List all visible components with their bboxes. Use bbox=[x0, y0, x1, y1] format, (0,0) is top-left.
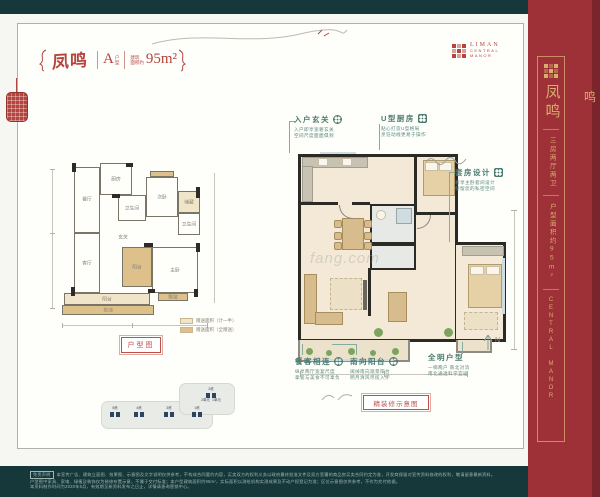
area-group: 建筑 面积约 95m² bbox=[130, 51, 177, 68]
building-icon bbox=[192, 412, 202, 417]
building-icon bbox=[134, 412, 144, 417]
area-caption-bottom: 面积约 bbox=[130, 60, 144, 65]
compass-label: N bbox=[495, 337, 500, 344]
dining-icon bbox=[334, 357, 343, 366]
small-floor-plan: 厨房 餐厅 卫生间 次卧 储藏 卫生间 玄关 客厅 阳台 主卧 飘窗 阳台 花池 bbox=[62, 163, 216, 333]
seal-icon bbox=[544, 64, 558, 78]
small-plan-caption: 户型图 bbox=[121, 337, 161, 353]
site-key-plan: 5栋 4栋 3栋 1栋 2栋 2单元 1单元 bbox=[102, 384, 236, 432]
gift-area-legend: 赠送面积（计一半） 赠送面积（全赠送） bbox=[180, 318, 237, 336]
pencil-scribble bbox=[320, 388, 356, 404]
flourish-right-icon bbox=[177, 48, 189, 72]
legend-label: 赠送面积（全赠送） bbox=[196, 327, 237, 333]
sidebar-edge-character: 鸣 bbox=[584, 88, 596, 105]
annotation-balcony: 南向阳台 阔绰南向观景阳台 明月清风尽揽入怀 bbox=[350, 356, 398, 381]
compass-icon: N bbox=[478, 330, 506, 354]
unit-label: 2单元 bbox=[201, 398, 210, 403]
disclaimer-line3: 本资料制作时间为2020年6月，有效期至新资料发布之日止，详情请垂询营销中心。 bbox=[30, 484, 498, 490]
room-label: 客厅 bbox=[82, 260, 92, 267]
brand-logo: LIMAN CENTRAL MANOR bbox=[452, 43, 500, 58]
building-label: 2栋 bbox=[208, 387, 213, 391]
seal-ornament-icon bbox=[6, 78, 26, 122]
unit-letter: A bbox=[103, 51, 114, 68]
building-label: 1栋 bbox=[194, 406, 199, 410]
red-sidebar-panel: 凤鸣 三房两厅两卫 户型面积约95m² CENTRAL MANOR 鸣 bbox=[528, 0, 600, 497]
pencil-note-sketch bbox=[424, 152, 468, 168]
top-border-band bbox=[0, 0, 600, 14]
annotation-bright: 全明户型 一梯两户 南北对流 南北通透科学宜居 bbox=[428, 352, 470, 377]
room-label: 主卧 bbox=[170, 267, 180, 274]
divider bbox=[543, 289, 559, 290]
unit-label: 1单元 bbox=[212, 398, 221, 403]
annotation-kitchen: U型厨房 贴心打造U型格局 烹饪动线更易于操作 bbox=[381, 113, 427, 138]
suite-icon bbox=[494, 168, 503, 177]
project-name: 凤鸣 bbox=[52, 46, 88, 74]
sidebar-edge-strip bbox=[592, 0, 600, 497]
room-label: 玄关 bbox=[118, 234, 128, 241]
room-label: 厨房 bbox=[111, 176, 121, 183]
annotation-suite: 套房设计 奢享主卧套间设计 保留您的私密空间 bbox=[455, 167, 503, 192]
disclaimer-band: 免责声明本宣传广告、建筑立面图、效果图、示意图及文字说明仅供参考，不构成合同要约… bbox=[0, 466, 600, 497]
foyer-icon bbox=[333, 115, 342, 124]
flourish-left-icon bbox=[36, 48, 48, 72]
legend-swatch-half bbox=[180, 318, 193, 324]
room-label: 餐厅 bbox=[82, 196, 92, 203]
divider bbox=[97, 51, 98, 69]
sidebar-spec: 三房两厅两卫 bbox=[548, 137, 555, 188]
building-icon bbox=[110, 412, 120, 417]
legend-swatch-full bbox=[180, 327, 193, 333]
divider bbox=[543, 195, 559, 196]
disclaimer-line1: 免责声明本宣传广告、建筑立面图、效果图、示意图及文字说明仅供参考，不构成合同要约… bbox=[30, 471, 498, 479]
unit-title-block: 凤鸣 A 户 型 建筑 面积约 95m² bbox=[36, 47, 189, 72]
balcony-icon bbox=[389, 357, 398, 366]
building-icon bbox=[164, 412, 174, 417]
annotation-dining: 餐客相连 纵享两厅宽宴尺度 挚爱与美食不可辜负 bbox=[295, 356, 343, 381]
room-label: 卫生间 bbox=[125, 205, 139, 212]
annotation-foyer: 入户玄关 入户即享宽奢玄关 空间尺度面面俱到 bbox=[294, 114, 342, 139]
divider bbox=[124, 51, 125, 69]
pencil-sketch-top bbox=[150, 26, 350, 50]
room-label: 飘窗 bbox=[168, 294, 178, 301]
building-label: 5栋 bbox=[112, 406, 117, 410]
legend-label: 赠送面积（计一半） bbox=[196, 318, 237, 324]
sidebar-brand: CENTRAL MANOR bbox=[548, 297, 554, 401]
room-label: 储藏 bbox=[184, 199, 194, 206]
bay-window-strip bbox=[150, 171, 174, 177]
annotation-title: 套房设计 bbox=[455, 167, 491, 178]
unit-letter-group: A 户 型 bbox=[103, 51, 119, 68]
brand-logo-line3: MANOR bbox=[470, 53, 500, 58]
annotation-title: U型厨房 bbox=[381, 113, 415, 124]
sidebar-project-name: 凤鸣 bbox=[544, 84, 559, 122]
annotation-title: 全明户型 bbox=[428, 352, 464, 363]
unit-caption-bottom: 型 bbox=[115, 60, 120, 65]
room-label: 阳台 bbox=[132, 264, 142, 271]
building-label: 4栋 bbox=[136, 406, 141, 410]
divider bbox=[543, 129, 559, 130]
disclaimer-tag: 免责声明 bbox=[30, 471, 54, 479]
area-value: 95m² bbox=[146, 51, 177, 68]
room-label: 次卧 bbox=[157, 194, 167, 201]
main-plan-caption: 精装修示意图 bbox=[363, 395, 429, 410]
annotation-title: 餐客相连 bbox=[295, 356, 331, 367]
watermark: fang.com bbox=[310, 250, 380, 267]
sidebar-column: 凤鸣 三房两厅两卫 户型面积约95m² CENTRAL MANOR bbox=[537, 56, 565, 442]
room-label: 阳台 bbox=[102, 296, 112, 303]
brand-seal-icon bbox=[452, 44, 466, 58]
room-label: 卫生间 bbox=[182, 221, 196, 228]
sidebar-area: 户型面积约95m² bbox=[548, 203, 555, 282]
annotation-title: 南向阳台 bbox=[350, 356, 386, 367]
kitchen-icon bbox=[418, 114, 427, 123]
room-label: 花池 bbox=[103, 307, 113, 314]
annotation-title: 入户玄关 bbox=[294, 114, 330, 125]
building-label: 3栋 bbox=[166, 406, 171, 410]
